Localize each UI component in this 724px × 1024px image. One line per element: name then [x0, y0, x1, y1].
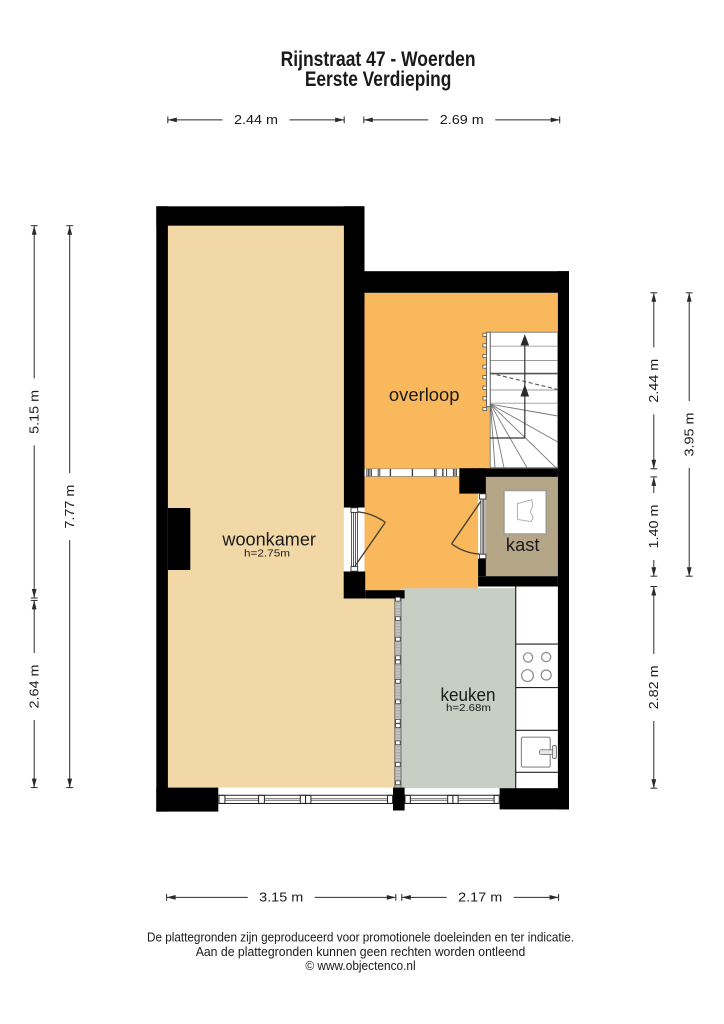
svg-text:h=2.75m: h=2.75m	[244, 548, 290, 560]
svg-text:Aan de plattegronden kunnen ge: Aan de plattegronden kunnen geen rechten…	[196, 944, 526, 959]
svg-text:5.15 m: 5.15 m	[28, 390, 42, 434]
svg-text:De plattegronden zijn geproduc: De plattegronden zijn geproduceerd voor …	[147, 930, 574, 945]
svg-text:2.17 m: 2.17 m	[458, 891, 502, 905]
svg-text:overloop: overloop	[389, 385, 460, 405]
svg-text:3.95 m: 3.95 m	[683, 413, 697, 457]
svg-text:2.69 m: 2.69 m	[440, 113, 484, 127]
svg-text:1.40 m: 1.40 m	[647, 505, 661, 549]
svg-text:Eerste Verdieping: Eerste Verdieping	[305, 68, 452, 91]
svg-text:h=2.68m: h=2.68m	[446, 702, 491, 714]
svg-text:2.82 m: 2.82 m	[647, 665, 661, 709]
svg-text:2.44 m: 2.44 m	[647, 359, 661, 403]
svg-text:kast: kast	[506, 535, 540, 555]
svg-text:© www.objectenco.nl: © www.objectenco.nl	[305, 958, 415, 973]
svg-text:woonkamer: woonkamer	[221, 530, 316, 550]
svg-text:2.64 m: 2.64 m	[28, 665, 42, 709]
svg-text:7.77 m: 7.77 m	[63, 485, 77, 529]
svg-text:3.15 m: 3.15 m	[259, 891, 303, 905]
svg-text:2.44 m: 2.44 m	[234, 113, 278, 127]
